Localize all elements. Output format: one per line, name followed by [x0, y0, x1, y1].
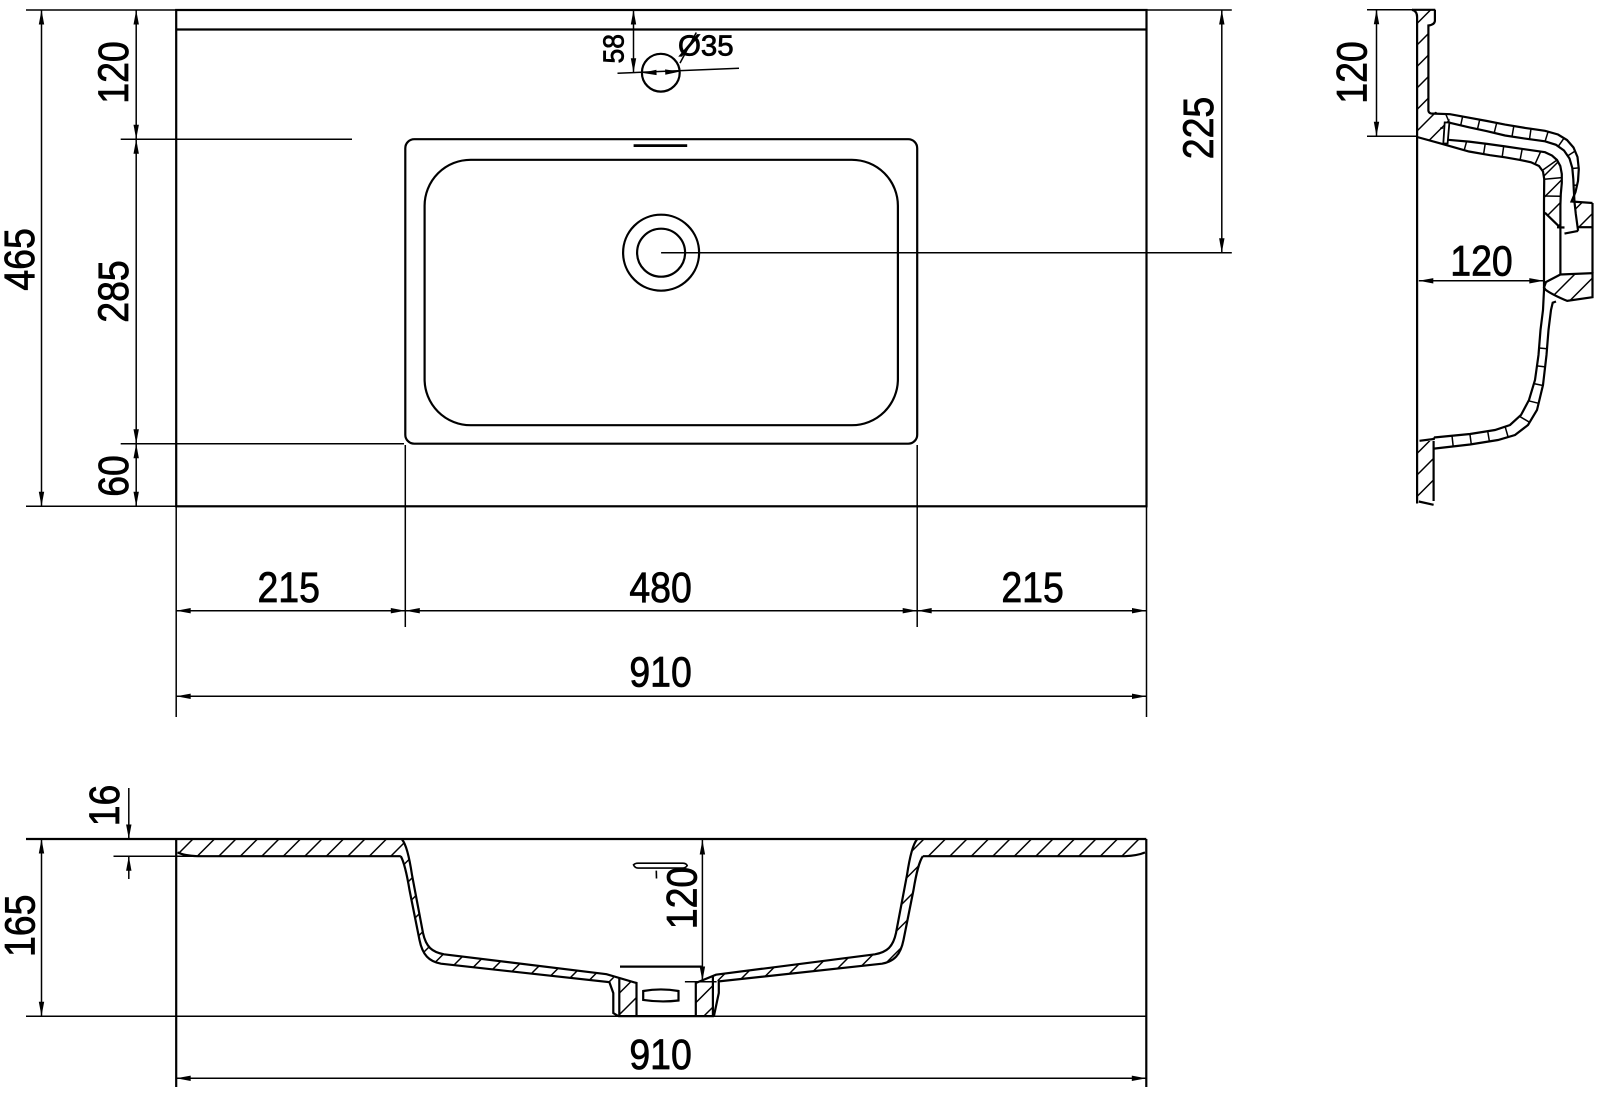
- svg-text:120: 120: [1329, 41, 1377, 104]
- svg-text:215: 215: [257, 564, 320, 612]
- svg-text:Ø35: Ø35: [678, 31, 734, 63]
- svg-text:58: 58: [598, 34, 630, 64]
- svg-text:215: 215: [1001, 564, 1064, 612]
- svg-text:465: 465: [0, 228, 44, 291]
- svg-text:120: 120: [1450, 238, 1513, 286]
- svg-text:910: 910: [629, 649, 692, 697]
- svg-text:225: 225: [1175, 97, 1223, 160]
- svg-text:480: 480: [629, 564, 692, 612]
- svg-text:120: 120: [659, 867, 707, 930]
- svg-text:120: 120: [90, 41, 138, 104]
- svg-text:16: 16: [81, 785, 129, 827]
- svg-text:60: 60: [90, 455, 138, 497]
- svg-text:910: 910: [629, 1031, 692, 1079]
- svg-text:165: 165: [0, 895, 45, 958]
- svg-text:285: 285: [90, 260, 138, 323]
